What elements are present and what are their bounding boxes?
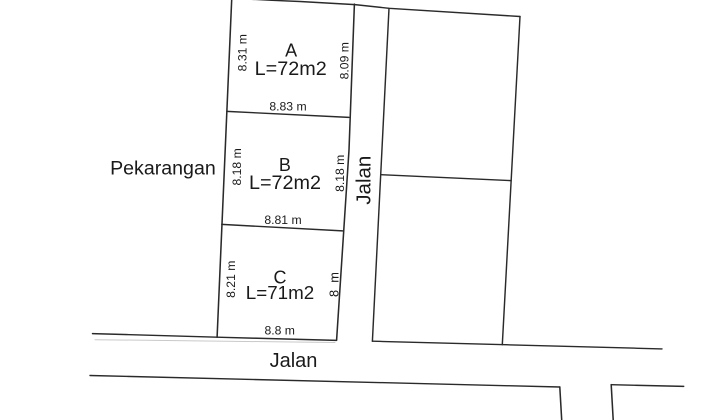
svg-text:8.09 m: 8.09 m xyxy=(337,42,351,79)
svg-text:L=71m2: L=71m2 xyxy=(246,282,314,303)
svg-text:8.31 m: 8.31 m xyxy=(236,34,250,71)
svg-text:8.21 m: 8.21 m xyxy=(224,261,238,298)
svg-text:Pekarangan: Pekarangan xyxy=(110,158,216,180)
svg-text:L=72m2: L=72m2 xyxy=(255,58,327,80)
svg-text:L=72m2: L=72m2 xyxy=(249,172,321,194)
svg-text:8.18 m: 8.18 m xyxy=(333,155,347,192)
svg-text:8.81 m: 8.81 m xyxy=(264,213,301,227)
svg-text:8.18 m: 8.18 m xyxy=(230,148,244,185)
svg-text:8.8 m: 8.8 m xyxy=(264,323,294,337)
svg-text:8 m: 8 m xyxy=(326,272,341,297)
svg-text:Jalan: Jalan xyxy=(270,350,318,372)
svg-text:8.83 m: 8.83 m xyxy=(269,99,306,113)
svg-text:Jalan: Jalan xyxy=(353,156,376,205)
